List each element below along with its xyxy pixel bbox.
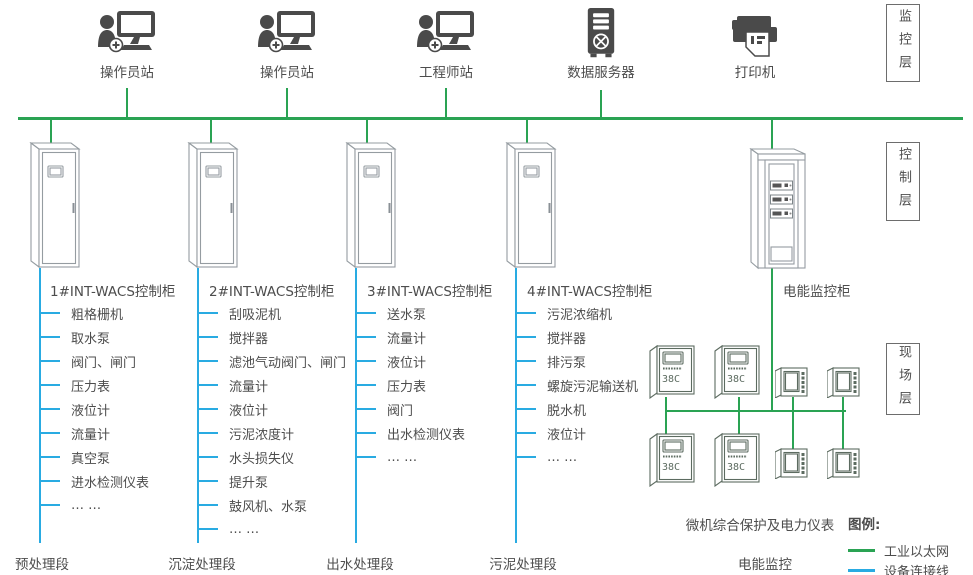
device-tick xyxy=(197,360,218,362)
device-row: 液位计 xyxy=(355,349,465,373)
device-label: 螺旋污泥输送机 xyxy=(547,376,638,395)
device-row: 排污泵 xyxy=(515,349,638,373)
legend-item-deviceline: 设备连接线 xyxy=(848,560,949,575)
device-row: 送水泵 xyxy=(355,301,465,325)
device-tick xyxy=(355,432,376,434)
station-label: 操作员站 xyxy=(100,65,154,82)
device-row: 流量计 xyxy=(39,421,149,445)
ethernet-drop-engineer xyxy=(445,88,447,118)
device-tick xyxy=(197,480,218,482)
device-tick xyxy=(355,456,376,458)
device-row: … … xyxy=(515,445,638,469)
device-row: 刮吸泥机 xyxy=(197,301,346,325)
device-row: 污泥浓缩机 xyxy=(515,301,638,325)
meter-connector xyxy=(665,397,667,411)
device-row: 取水泵 xyxy=(39,325,149,349)
device-label: 粗格栅机 xyxy=(71,304,123,323)
operator-station-icon xyxy=(97,9,157,59)
device-tick xyxy=(197,312,218,314)
device-row: 压力表 xyxy=(39,373,149,397)
device-tick xyxy=(39,432,60,434)
operator-station-1: 操作员站 xyxy=(67,8,187,82)
ethernet-drop-operator1 xyxy=(126,88,128,118)
device-label: 阀门 xyxy=(387,400,413,419)
device-label: 搅拌器 xyxy=(547,328,586,347)
device-label: 污泥浓缩机 xyxy=(547,304,612,323)
data-server: 数据服务器 xyxy=(541,8,661,82)
device-label: 搅拌器 xyxy=(229,328,268,347)
field-bus-line xyxy=(665,410,846,412)
device-row: 液位计 xyxy=(515,421,638,445)
device-label: 压力表 xyxy=(387,376,426,395)
device-row: 脱水机 xyxy=(515,397,638,421)
layer-label: 现场层 xyxy=(887,345,919,414)
device-row: 流量计 xyxy=(355,325,465,349)
device-row: … … xyxy=(197,517,346,541)
layer-box-field: 现场层 xyxy=(886,343,920,415)
control-cabinet-icon-1 xyxy=(27,140,81,270)
device-row: 水头损失仪 xyxy=(197,445,346,469)
relay-meter-icon xyxy=(649,430,696,487)
layer-box-monitoring: 监控层 xyxy=(886,4,920,82)
device-label: 提升泵 xyxy=(229,472,268,491)
panel-meter-icon xyxy=(775,367,808,398)
device-tick xyxy=(355,360,376,362)
device-label: 鼓风机、水泵 xyxy=(229,496,307,515)
device-row: 阀门、闸门 xyxy=(39,349,149,373)
device-row: 出水检测仪表 xyxy=(355,421,465,445)
device-list-cabinet4: 污泥浓缩机 搅拌器 排污泵 螺旋污泥输送机 脱水机 液位计 … … xyxy=(515,301,638,469)
device-row: 液位计 xyxy=(39,397,149,421)
control-cabinet-icon-2 xyxy=(185,140,239,270)
scada-architecture-diagram: 38C xyxy=(0,0,973,575)
device-tick xyxy=(515,336,536,338)
device-row: 鼓风机、水泵 xyxy=(197,493,346,517)
cabinet-title-2: 2#INT-WACS控制柜 xyxy=(209,280,334,300)
layer-label: 控制层 xyxy=(887,147,919,216)
device-row: … … xyxy=(355,445,465,469)
meter-connector xyxy=(792,412,794,450)
relay-meter-icon xyxy=(714,430,761,487)
device-tick xyxy=(355,408,376,410)
device-tick xyxy=(515,360,536,362)
device-row: 搅拌器 xyxy=(515,325,638,349)
device-row: 螺旋污泥输送机 xyxy=(515,373,638,397)
device-tick xyxy=(515,456,536,458)
meter-connector xyxy=(792,397,794,411)
device-tick xyxy=(39,384,60,386)
device-tick xyxy=(39,360,60,362)
operator-station-icon xyxy=(257,9,317,59)
device-label: 流量计 xyxy=(71,424,110,443)
stage-label-2: 沉淀处理段 xyxy=(168,553,236,573)
device-tick xyxy=(197,528,218,530)
legend-label: 设备连接线 xyxy=(884,561,949,575)
stage-label-4: 污泥处理段 xyxy=(489,553,557,573)
engineer-station-icon xyxy=(416,9,476,59)
device-tick xyxy=(515,408,536,410)
meter-connector xyxy=(738,397,740,411)
device-row: 阀门 xyxy=(355,397,465,421)
device-label: 液位计 xyxy=(387,352,426,371)
legend-label: 工业以太网 xyxy=(884,541,949,560)
station-label: 打印机 xyxy=(735,65,776,82)
powercab-field-line xyxy=(771,266,773,412)
control-cabinet-icon-3 xyxy=(343,140,397,270)
meter-connector xyxy=(842,397,844,411)
relay-meter-icon xyxy=(649,342,696,399)
device-tick xyxy=(39,408,60,410)
device-line-swatch xyxy=(848,569,875,572)
device-label: … … xyxy=(229,522,259,537)
device-tick xyxy=(39,456,60,458)
meter-connector xyxy=(842,412,844,450)
device-label: 取水泵 xyxy=(71,328,110,347)
ethernet-drop-server xyxy=(600,90,602,118)
device-tick xyxy=(197,408,218,410)
device-label: 滤池气动阀门、闸门 xyxy=(229,352,346,371)
ethernet-drop-operator2 xyxy=(286,88,288,118)
relay-meter-icon xyxy=(714,342,761,399)
device-tick xyxy=(355,336,376,338)
device-row: … … xyxy=(39,493,149,517)
device-tick xyxy=(355,312,376,314)
printer-icon xyxy=(732,15,778,59)
device-row: 提升泵 xyxy=(197,469,346,493)
device-label: 刮吸泥机 xyxy=(229,304,281,323)
meters-group-label: 微机综合保护及电力仪表 xyxy=(686,514,835,534)
device-row: 压力表 xyxy=(355,373,465,397)
panel-meter-icon xyxy=(827,367,860,398)
device-label: 污泥浓度计 xyxy=(229,424,294,443)
operator-station-2: 操作员站 xyxy=(227,8,347,82)
device-label: 液位计 xyxy=(71,400,110,419)
printer: 打印机 xyxy=(695,8,815,82)
device-tick xyxy=(355,384,376,386)
legend: 图例: 工业以太网 设备连接线 xyxy=(848,513,949,575)
device-row: 搅拌器 xyxy=(197,325,346,349)
device-label: 脱水机 xyxy=(547,400,586,419)
device-list-cabinet2: 刮吸泥机 搅拌器 滤池气动阀门、闸门 流量计 液位计 污泥浓度计 水头损失仪 提… xyxy=(197,301,346,541)
device-row: 污泥浓度计 xyxy=(197,421,346,445)
device-label: 水头损失仪 xyxy=(229,448,294,467)
device-label: 液位计 xyxy=(547,424,586,443)
device-row: 真空泵 xyxy=(39,445,149,469)
device-row: 粗格栅机 xyxy=(39,301,149,325)
device-tick xyxy=(39,504,60,506)
device-label: 流量计 xyxy=(229,376,268,395)
device-tick xyxy=(197,336,218,338)
device-list-cabinet3: 送水泵 流量计 液位计 压力表 阀门 出水检测仪表 … … xyxy=(355,301,465,469)
device-label: 压力表 xyxy=(71,376,110,395)
ethernet-bus-line xyxy=(18,117,963,120)
cabinet-title-4: 4#INT-WACS控制柜 xyxy=(527,280,652,300)
cabinet-title-3: 3#INT-WACS控制柜 xyxy=(367,280,492,300)
stage-label-power: 电能监控 xyxy=(738,553,792,573)
device-tick xyxy=(197,384,218,386)
device-tick xyxy=(515,384,536,386)
device-tick xyxy=(197,504,218,506)
device-label: 液位计 xyxy=(229,400,268,419)
engineer-station: 工程师站 xyxy=(386,8,506,82)
device-tick xyxy=(515,432,536,434)
device-tick xyxy=(197,456,218,458)
device-label: 送水泵 xyxy=(387,304,426,323)
station-label: 数据服务器 xyxy=(567,65,635,82)
device-label: 真空泵 xyxy=(71,448,110,467)
device-row: 液位计 xyxy=(197,397,346,421)
power-cabinet-title: 电能监控柜 xyxy=(783,280,851,300)
device-row: 滤池气动阀门、闸门 xyxy=(197,349,346,373)
device-tick xyxy=(39,336,60,338)
device-tick xyxy=(39,312,60,314)
stage-label-1: 预处理段 xyxy=(15,553,69,573)
device-label: … … xyxy=(387,450,417,465)
station-label: 操作员站 xyxy=(260,65,314,82)
cabinet-title-1: 1#INT-WACS控制柜 xyxy=(50,280,175,300)
panel-meter-icon xyxy=(827,448,860,479)
device-label: 进水检测仪表 xyxy=(71,472,149,491)
device-label: … … xyxy=(547,450,577,465)
device-list-cabinet1: 粗格栅机 取水泵 阀门、闸门 压力表 液位计 流量计 真空泵 进水检测仪表 … … xyxy=(39,301,149,517)
stage-label-3: 出水处理段 xyxy=(326,553,394,573)
device-label: 阀门、闸门 xyxy=(71,352,136,371)
device-label: 排污泵 xyxy=(547,352,586,371)
panel-meter-icon xyxy=(775,448,808,479)
layer-label: 监控层 xyxy=(887,9,919,78)
power-cabinet-icon xyxy=(748,144,808,272)
device-tick xyxy=(515,312,536,314)
layer-box-control: 控制层 xyxy=(886,142,920,221)
control-cabinet-icon-4 xyxy=(503,140,557,270)
device-label: … … xyxy=(71,498,101,513)
device-row: 流量计 xyxy=(197,373,346,397)
device-label: 出水检测仪表 xyxy=(387,424,465,443)
ethernet-line-swatch xyxy=(848,549,875,552)
legend-title: 图例: xyxy=(848,513,949,533)
device-tick xyxy=(39,480,60,482)
device-row: 进水检测仪表 xyxy=(39,469,149,493)
data-server-icon xyxy=(584,8,618,59)
device-tick xyxy=(197,432,218,434)
device-label: 流量计 xyxy=(387,328,426,347)
station-label: 工程师站 xyxy=(419,65,473,82)
legend-item-ethernet: 工业以太网 xyxy=(848,540,949,560)
